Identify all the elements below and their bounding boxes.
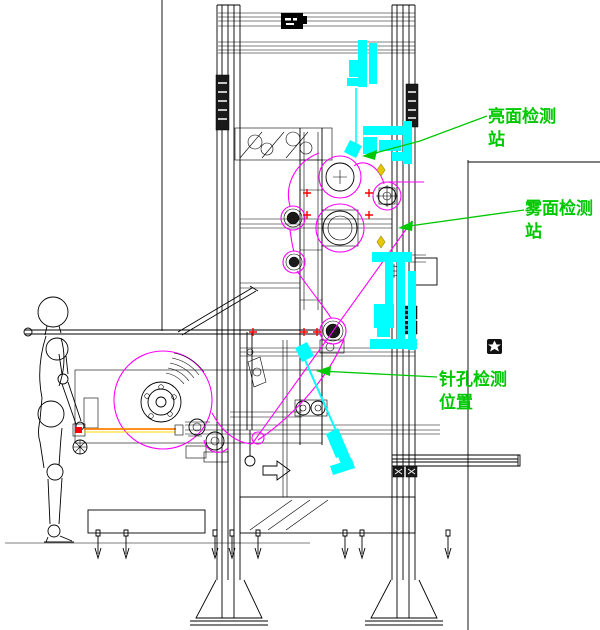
feed-start-marker <box>75 427 82 433</box>
dancer-bar <box>247 332 252 430</box>
motor-box-mark <box>293 18 297 21</box>
frame-structure <box>5 0 600 630</box>
tilted-bracket <box>248 357 266 387</box>
pinhole-leader-line <box>320 371 437 377</box>
central-machinery <box>185 128 502 480</box>
motor-box-tab <box>303 16 307 24</box>
pinhole-annotation: 针孔检测 位置 <box>316 366 507 413</box>
camera-lens <box>344 140 362 158</box>
top-motor-box <box>281 13 303 29</box>
dancer-weight <box>245 456 255 466</box>
roller-small-upper <box>287 212 299 224</box>
matte-station-label-line1: 雾面检测 <box>524 198 593 219</box>
mannequin-elbow <box>58 374 68 384</box>
mannequin-hip <box>38 401 64 427</box>
diagonal-brace <box>178 286 258 335</box>
roll-outer-magenta <box>114 351 212 449</box>
pinhole-leader-arrowhead <box>316 366 331 376</box>
yellow-marker <box>377 236 385 248</box>
lower-mid-beam <box>240 348 415 356</box>
machine-drawing: 亮面检测 站 雾面检测 站 针孔检测 位置 <box>0 0 600 630</box>
right-foot <box>365 580 443 625</box>
mannequin-knee <box>47 464 63 480</box>
pinhole-label-line1: 针孔检测 <box>439 369 507 390</box>
left-foot <box>190 580 268 625</box>
top-beam <box>218 13 415 26</box>
support-rod <box>25 330 320 334</box>
matte-station-camera <box>370 252 417 350</box>
matte-leader-arrowhead <box>398 221 413 231</box>
pinhole-label-line2: 位置 <box>439 392 473 413</box>
motor-box-mark <box>286 23 294 25</box>
anchor-bolts <box>95 530 451 558</box>
left-short-beam <box>240 283 300 288</box>
rod-end <box>24 328 32 336</box>
yellow-marker <box>377 164 385 176</box>
roll-hub-core <box>156 397 166 407</box>
pinhole-emitter <box>295 342 314 362</box>
feed-end-bracket <box>175 425 183 435</box>
right-extension-beam <box>392 455 520 466</box>
right-post-connector <box>406 84 418 127</box>
direction-arrow <box>263 461 290 480</box>
second-beam <box>218 42 415 53</box>
matte-leader-line <box>402 210 524 227</box>
roller-small-lower <box>289 257 299 267</box>
red-cross-markers <box>249 189 373 336</box>
bright-station-label-line2: 站 <box>488 129 505 150</box>
motor-box-mark <box>285 18 291 21</box>
unwind-roll <box>73 351 212 454</box>
mannequin-shoulder <box>46 338 68 360</box>
cad-drawing-canvas: 亮面检测 站 雾面检测 站 针孔检测 位置 <box>0 0 600 630</box>
roll-hub-outer <box>141 382 181 422</box>
feed-bracket <box>84 398 98 428</box>
bright-station-label-line1: 亮面检测 <box>488 106 556 127</box>
bench-left <box>88 510 205 533</box>
matte-station-label-line2: 站 <box>525 221 542 242</box>
roll-wound-film-arcs <box>166 353 204 384</box>
matte-station-annotation: 雾面检测 站 <box>398 198 593 242</box>
bench-right <box>240 497 415 533</box>
mannequin-ankle <box>48 525 60 537</box>
bench-truss <box>250 500 328 530</box>
roll-hub-mid <box>148 389 174 415</box>
film-feed-line <box>75 425 183 435</box>
cyan-stations <box>295 40 417 475</box>
mannequin-head <box>38 297 68 327</box>
